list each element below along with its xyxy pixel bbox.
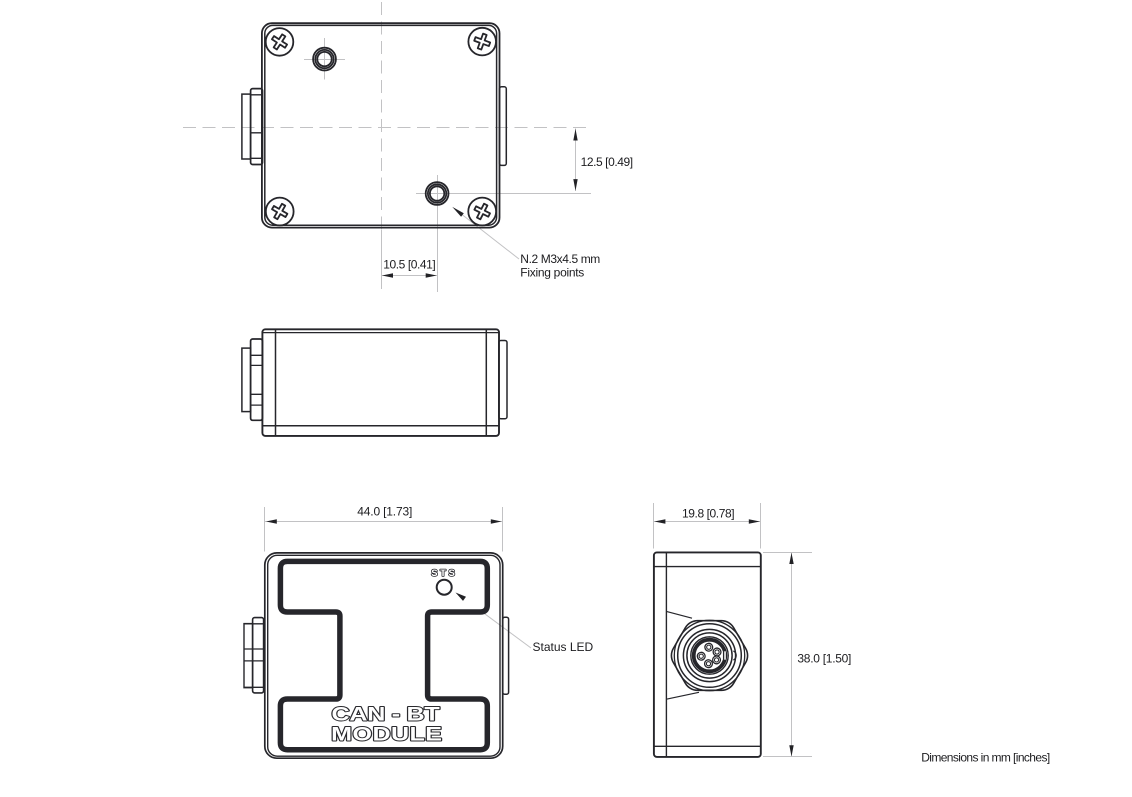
svg-text:44.0 [1.73]: 44.0 [1.73] (357, 505, 412, 519)
svg-text:10.5 [0.41]: 10.5 [0.41] (383, 258, 436, 272)
svg-text:Status LED: Status LED (533, 640, 594, 654)
svg-text:38.0 [1.50]: 38.0 [1.50] (797, 652, 851, 666)
svg-text:Dimensions in mm [inches]: Dimensions in mm [inches] (921, 750, 1050, 764)
svg-text:STS: STS (431, 568, 455, 579)
svg-text:MODULE: MODULE (331, 723, 442, 744)
svg-text:CAN - BT: CAN - BT (331, 703, 440, 724)
svg-text:N.2 M3x4.5 mm: N.2 M3x4.5 mm (520, 252, 600, 266)
svg-text:Fixing points: Fixing points (520, 265, 584, 279)
svg-text:12.5 [0.49]: 12.5 [0.49] (581, 155, 634, 169)
svg-text:19.8 [0.78]: 19.8 [0.78] (682, 506, 735, 520)
